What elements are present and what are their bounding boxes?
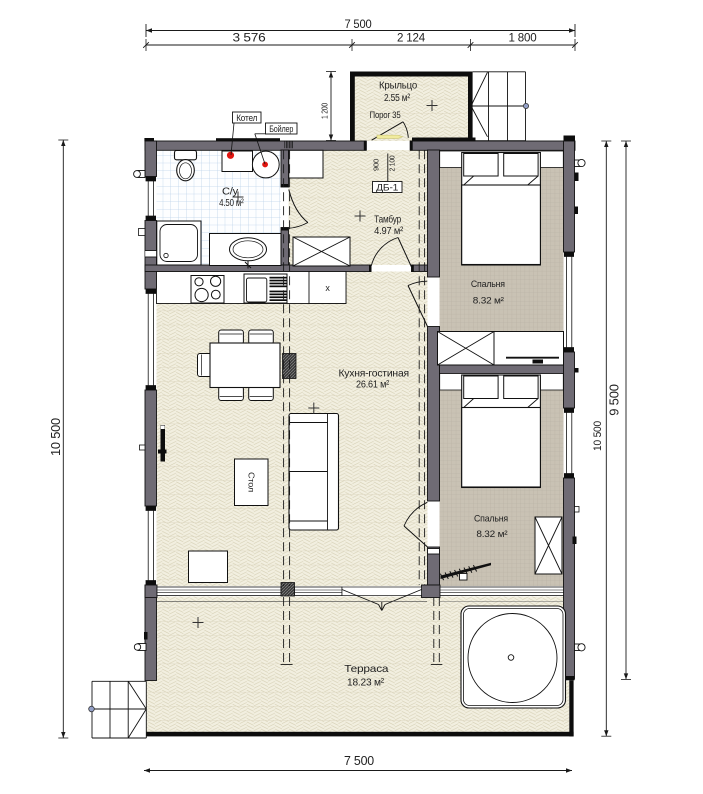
svg-text:4.97 м²: 4.97 м² [374,226,404,237]
svg-text:Котел: Котел [236,113,257,123]
svg-text:7 500: 7 500 [344,754,374,768]
svg-text:Стол: Стол [247,472,256,493]
svg-text:18.23 м²: 18.23 м² [347,678,385,689]
svg-text:Порог 35: Порог 35 [370,110,401,121]
svg-text:10 500: 10 500 [592,421,604,451]
svg-text:8.32 м²: 8.32 м² [473,296,504,307]
svg-text:Бойлер: Бойлер [269,124,293,134]
svg-text:Тамбур: Тамбур [374,214,401,226]
svg-text:900: 900 [374,159,381,171]
svg-text:С/у: С/у [222,186,239,198]
svg-text:26.61 м²: 26.61 м² [356,380,390,391]
svg-text:9 500: 9 500 [608,384,622,416]
svg-text:1 200: 1 200 [321,102,330,119]
svg-text:7 500: 7 500 [345,17,372,31]
svg-text:Кухня-гостиная: Кухня-гостиная [338,368,409,380]
svg-text:2 124: 2 124 [397,31,426,45]
svg-text:1 800: 1 800 [509,31,538,45]
svg-text:Спальня: Спальня [471,279,505,290]
svg-text:x: x [325,283,330,293]
svg-text:2.55 м²: 2.55 м² [384,93,411,104]
svg-text:Спальня: Спальня [474,514,508,525]
svg-text:4.50 м²: 4.50 м² [219,198,244,209]
svg-text:3 576: 3 576 [233,31,267,45]
svg-text:ДБ-1: ДБ-1 [376,183,398,194]
svg-text:10 500: 10 500 [49,418,63,456]
svg-text:Терраса: Терраса [344,663,388,675]
svg-text:8.32 м²: 8.32 м² [476,529,507,540]
svg-text:2 100: 2 100 [388,155,397,171]
svg-text:Крыльцо: Крыльцо [379,80,417,92]
